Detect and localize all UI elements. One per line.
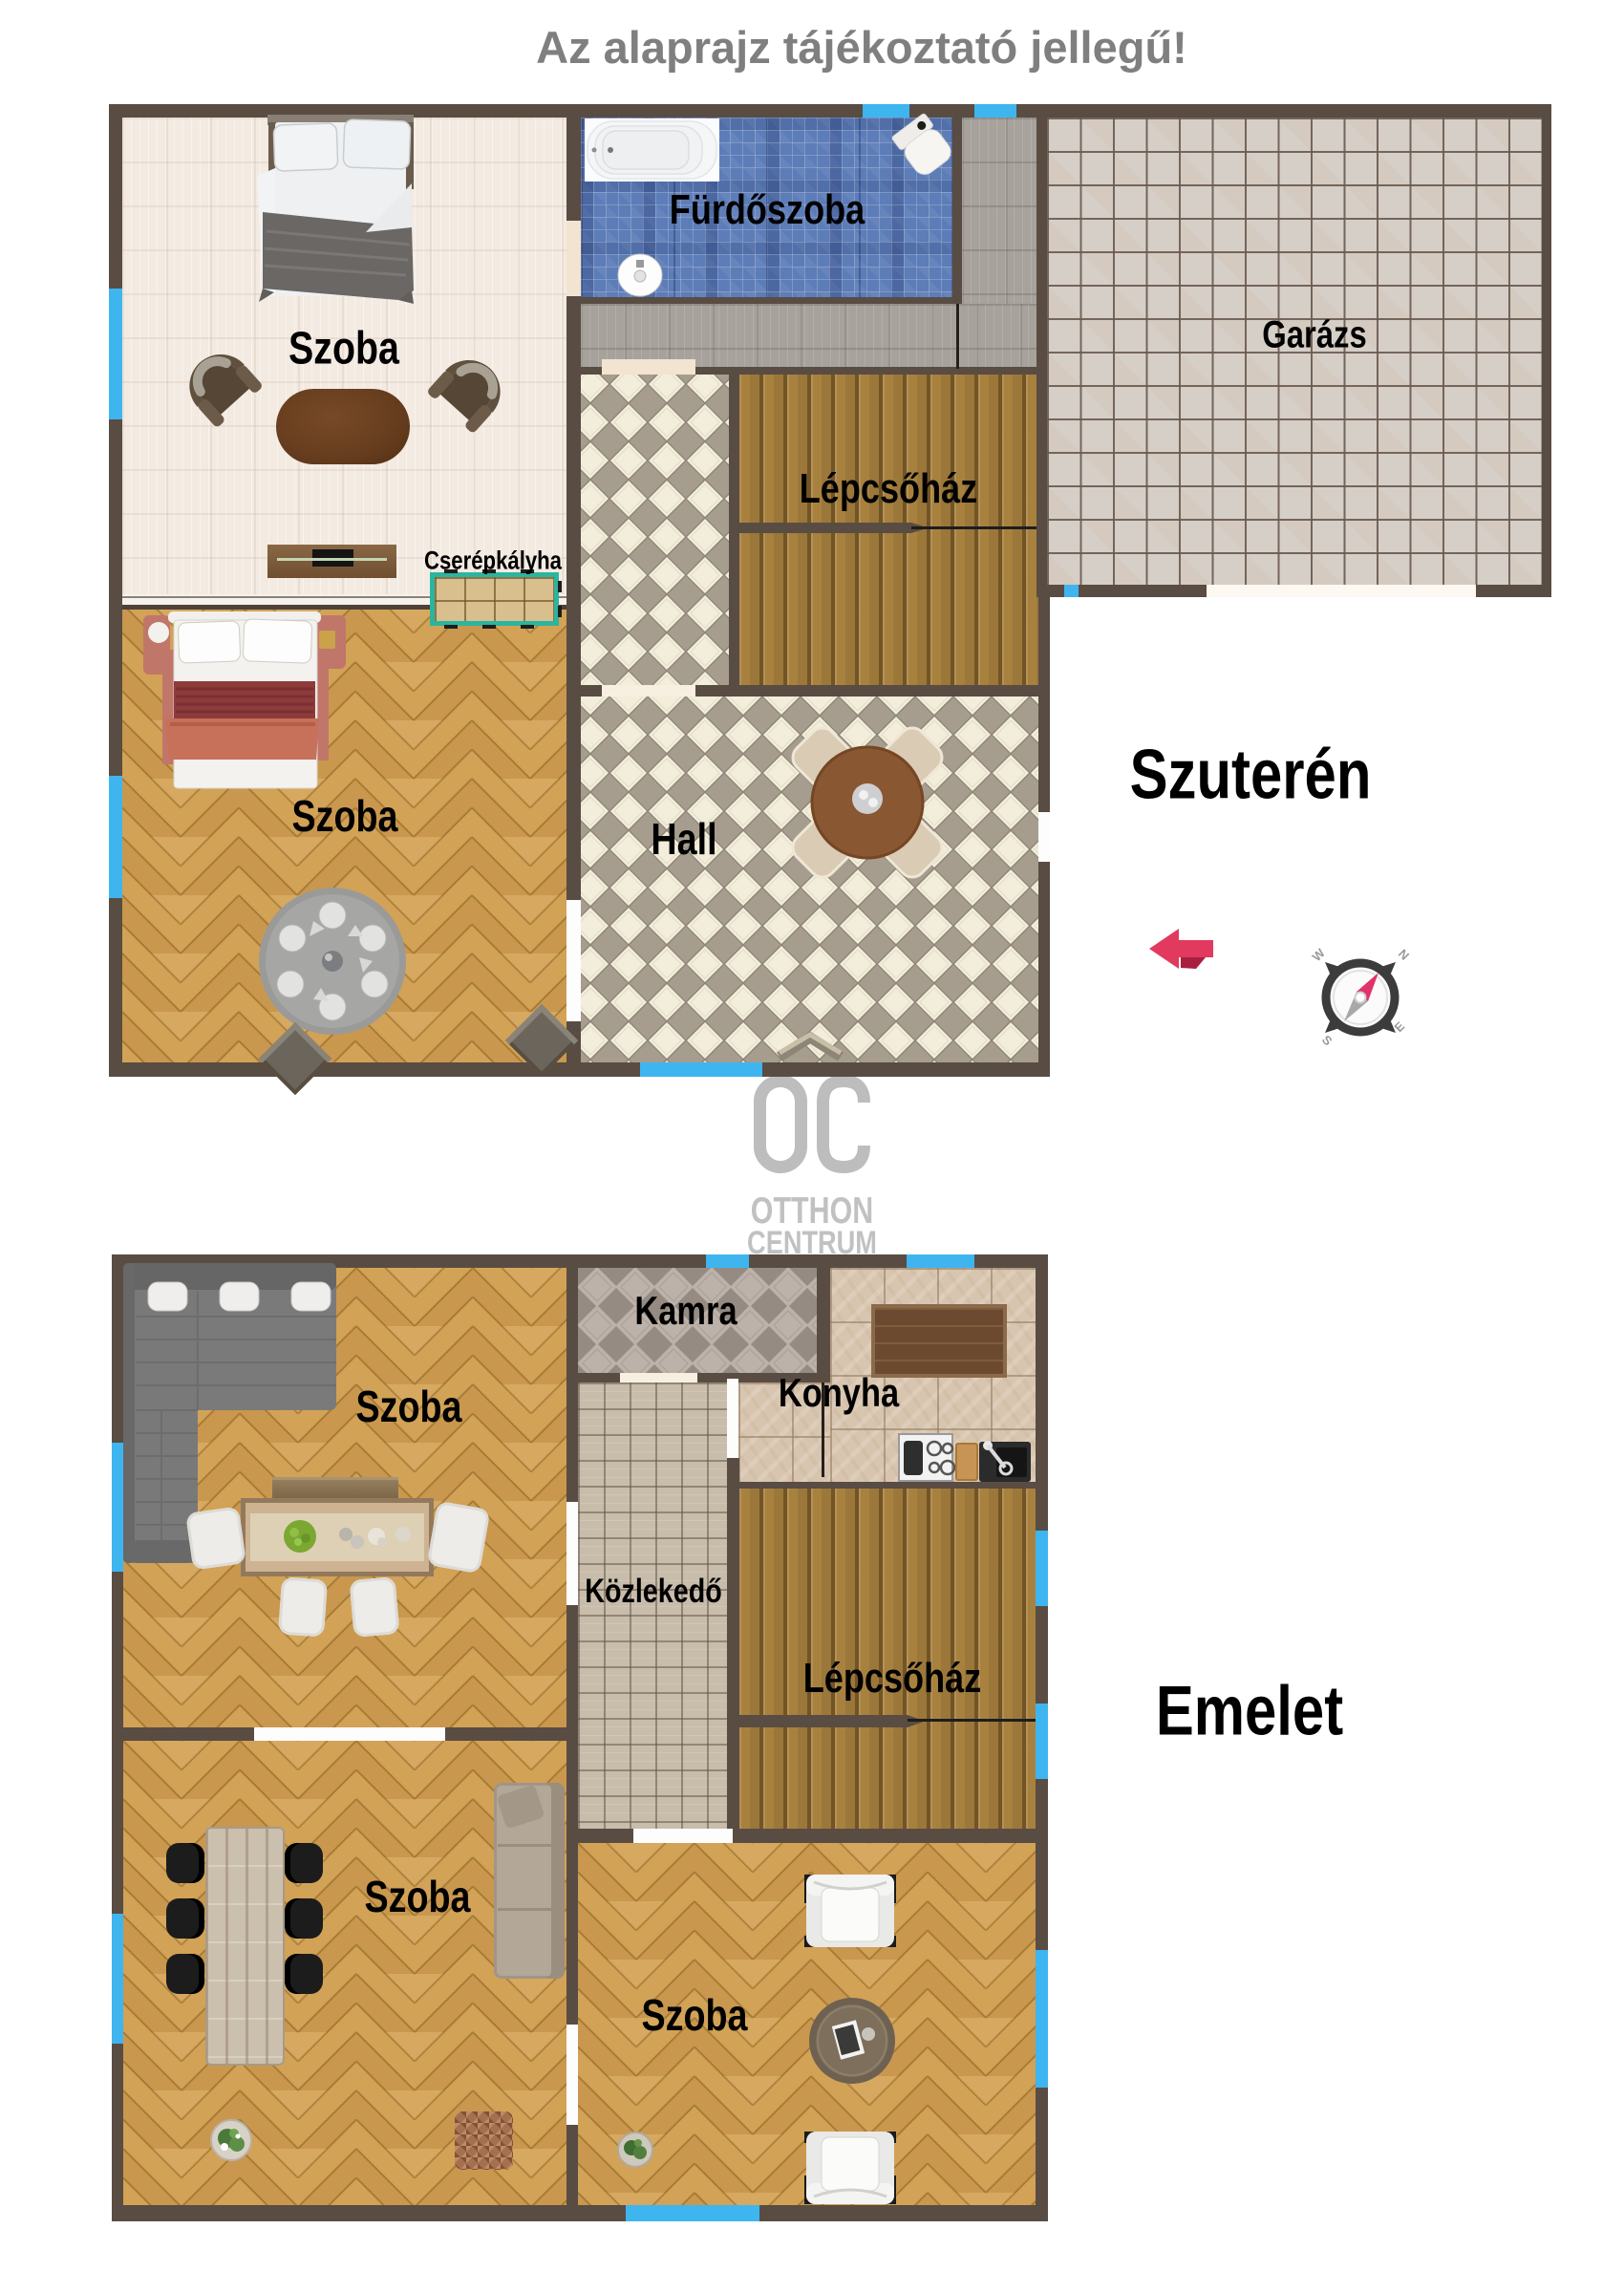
svg-text:S: S	[1319, 1033, 1336, 1049]
svg-text:W: W	[1310, 945, 1329, 964]
svg-text:E: E	[1392, 1018, 1408, 1035]
svg-text:N: N	[1396, 947, 1412, 963]
